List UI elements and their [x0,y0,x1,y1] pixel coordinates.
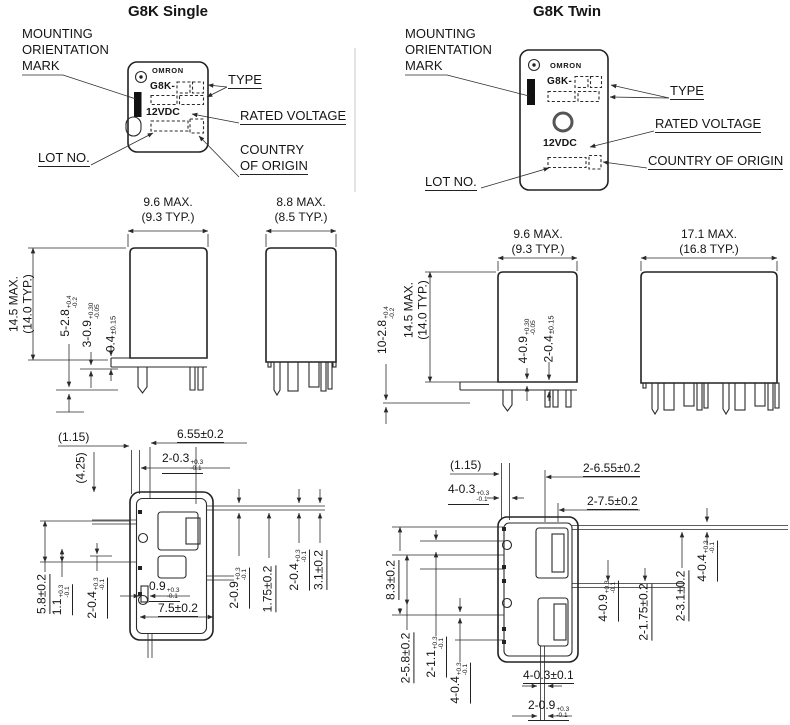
single-country-label-line1: COUNTRY [240,143,304,157]
single-lot-no-label: LOT NO. [38,151,90,167]
twin-mounting-mark-label-line1: MOUNTING [405,27,476,41]
twin-type-label: TYPE [670,84,704,100]
single-bottom-31-dim: 3.1±0.2 [312,550,327,590]
diagram-linework [0,0,790,725]
mounting-orientation-mark-bar [527,79,535,105]
twin-bottom-09-bottom-dim: 2-0.9+0.3-0.1 [528,699,569,721]
single-bottom-175-dim: 1.75±0.2 [261,566,276,613]
single-mounting-mark-label-line2: ORIENTATION [22,43,109,57]
twin-face-drawing [405,50,669,190]
twin-side-width-max: 9.6 MAX. [513,228,562,241]
twin-front-view [641,258,779,414]
twin-lot-no-label: LOT NO. [425,175,477,191]
single-brand-text: OMRON [152,67,184,75]
single-voltage-text: 12VDC [146,107,180,119]
single-front-view [266,231,336,395]
twin-rated-voltage-label: RATED VOLTAGE [655,117,761,133]
single-bottom-09-bottom-dim: 0.9+0.3-0.1 [149,580,180,602]
twin-bottom-75-dim: 2-7.5±0.2 [587,495,638,510]
twin-bottom-09-right-dim: 4-0.9+0.3-0.1 [597,580,619,621]
single-bottom-04-left-dim: 2-0.4+0.3-0.1 [86,577,108,618]
single-model-text: G8K- [150,81,175,92]
single-standoff-dim: 0.4±0.15 [104,316,117,352]
single-terminal-width-dim: 5-2.8+0.4-0.2 [59,295,79,336]
single-terminal-thickness-dim: 3-0.9+0.30-0.05 [81,303,101,348]
twin-mounting-mark-label-line3: MARK [405,59,443,73]
single-title: G8K Single [128,4,208,21]
twin-bottom-11-dim: 2-1.1+0.3-0.1 [425,636,447,677]
single-bottom-04-right-dim: 2-0.4+0.3-0.1 [288,549,310,590]
twin-front-width-typ: (16.8 TYP.) [679,243,739,256]
twin-bottom-offset-x: (1.15) [450,459,481,472]
twin-brand-text: OMRON [550,62,582,70]
twin-voltage-text: 12VDC [543,138,577,150]
twin-terminal-thickness-dim: 4-0.9+0.30-0.05 [517,319,537,364]
single-side-width-max: 9.6 MAX. [143,196,192,209]
twin-bottom-655-dim: 2-6.55±0.2 [583,462,640,477]
twin-bottom-83-dim: 8.3±0.2 [384,560,399,600]
single-bottom-offset-x: (1.15) [58,431,89,444]
twin-bottom-03-bottom-dim: 4-0.3±0.1 [523,669,574,684]
twin-front-width-max: 17.1 MAX. [681,228,737,241]
single-mounting-mark-label-line1: MOUNTING [22,27,93,41]
twin-side-width-typ: (9.3 TYP.) [512,243,565,256]
single-bottom-11-dim: 1.1+0.3-0.1 [51,585,73,616]
twin-bottom-04-right-dim: 4-0.4+0.3-0.1 [696,540,718,581]
single-rated-voltage-label: RATED VOLTAGE [240,109,346,125]
single-side-height-max: 14.5 MAX. [7,276,20,332]
single-side-width-typ: (9.3 TYP.) [142,211,195,224]
single-mounting-mark-label-line3: MARK [22,59,60,73]
relay-marking-dimension-diagram: G8K Single MOUNTING ORIENTATION MARK TYP… [0,0,790,725]
single-type-label: TYPE [228,73,262,89]
single-bottom-655-dim: 6.55±0.2 [177,428,224,443]
twin-country-label: COUNTRY OF ORIGIN [648,154,783,170]
single-bottom-75-dim: 7.5±0.2 [158,602,198,617]
single-bottom-03-dim: 2-0.3+0.3-0.1 [162,452,203,474]
mounting-orientation-mark-bar [134,92,142,117]
twin-bottom-03-dim: 4-0.3+0.3-0.1 [448,483,489,505]
twin-bottom-58-dim: 2-5.8±0.2 [399,633,414,684]
twin-bottom-31-dim: 2-3.1±0.2 [674,571,689,622]
twin-side-height-max: 14.5 MAX. [402,282,415,338]
single-front-width-typ: (8.5 TYP.) [275,211,328,224]
twin-model-text: G8K- [547,76,572,87]
single-front-width-max: 8.8 MAX. [276,196,325,209]
twin-side-height-typ: (14.0 TYP.) [416,280,429,340]
single-country-label-line2: OF ORIGIN [240,159,308,175]
twin-bottom-04-left-dim: 4-0.4+0.3-0.1 [449,662,471,703]
single-bottom-offset-y: (4.25) [74,452,87,483]
single-side-view [28,231,208,412]
twin-standoff-dim: 2-0.4±0.15 [542,315,555,362]
twin-title: G8K Twin [533,4,601,21]
single-side-height-typ: (14.0 TYP.) [21,274,34,334]
twin-mounting-mark-label-line2: ORIENTATION [405,43,492,57]
twin-terminal-width-dim: 10-2.8+0.4-0.2 [376,306,396,354]
single-bottom-09-right-dim: 2-0.9+0.3-0.1 [228,567,250,608]
twin-bottom-175-dim: 2-1.75±0.2 [637,583,652,640]
single-bottom-58-dim: 5.8±0.2 [35,574,50,614]
